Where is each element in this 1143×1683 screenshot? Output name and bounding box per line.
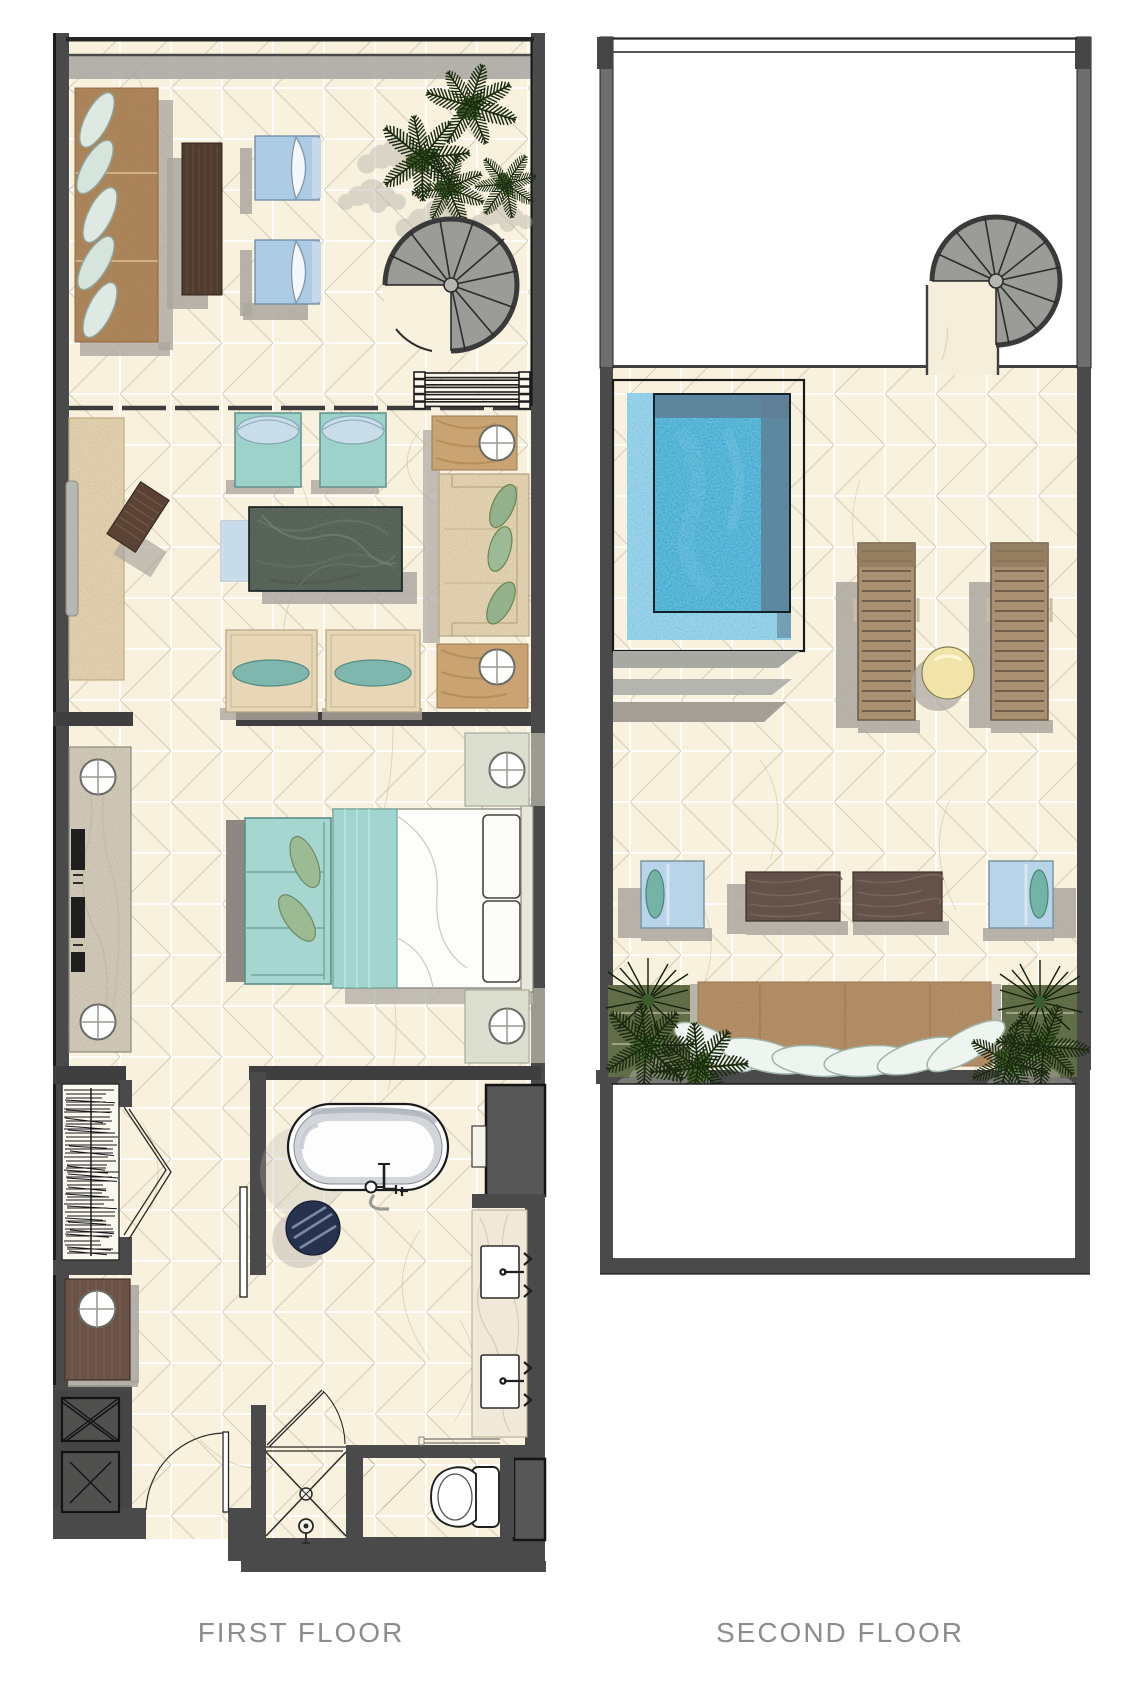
svg-text:SECOND FLOOR: SECOND FLOOR [716,1617,964,1648]
svg-text:FIRST FLOOR: FIRST FLOOR [198,1617,405,1648]
